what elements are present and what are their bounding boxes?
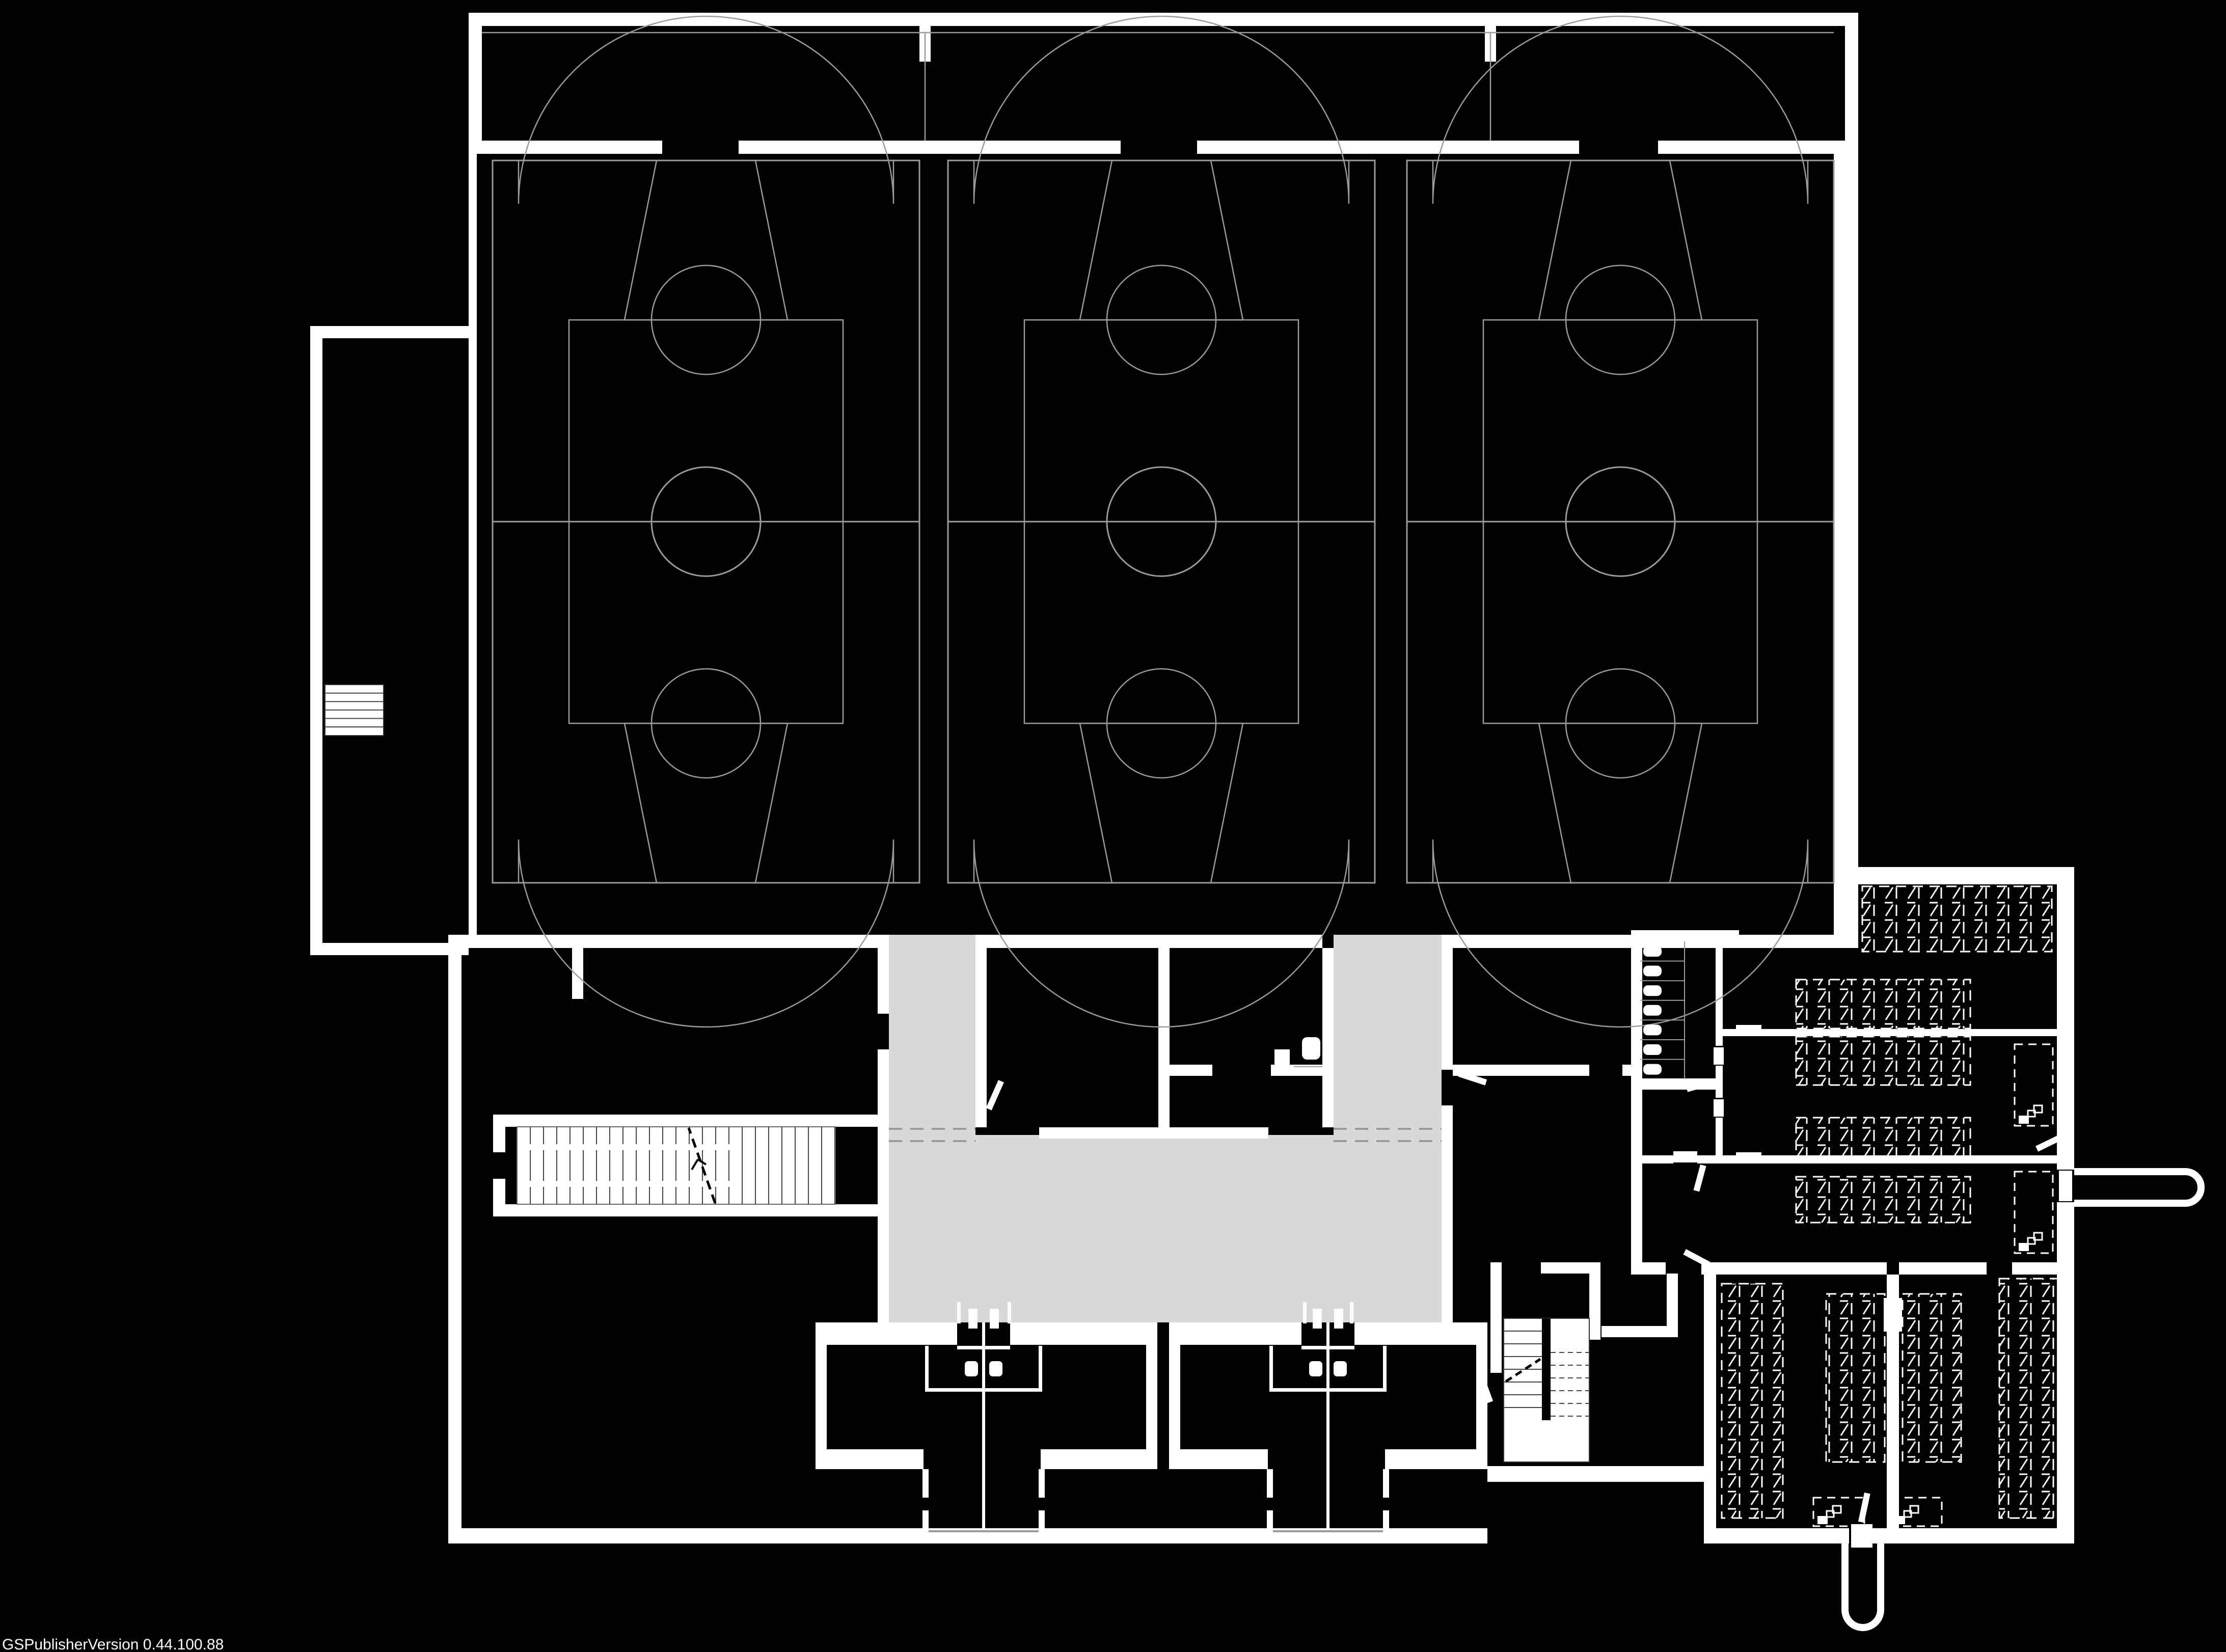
door-panel <box>1736 1152 1761 1163</box>
wall-segment <box>1322 948 1334 1127</box>
central-wc <box>1274 1037 1322 1067</box>
bike-storage-hatch-4 <box>1796 1118 1970 1161</box>
wall-segment <box>1716 1118 1723 1155</box>
wall-segment <box>1039 1510 1045 1528</box>
wall-segment <box>1197 141 1579 154</box>
toilet-fixture <box>1302 1037 1320 1060</box>
wall-segment <box>310 326 469 338</box>
bench-seat <box>989 1361 1002 1376</box>
toilet-fixture <box>1643 985 1662 996</box>
wall-segment <box>448 948 462 1543</box>
wall-segment <box>1169 1322 1180 1469</box>
wall-segment <box>1039 1469 1045 1498</box>
wall-segment <box>1541 1262 1592 1274</box>
wall-segment <box>482 141 662 154</box>
alcove-wall <box>1301 1346 1354 1349</box>
wall-segment <box>448 935 889 948</box>
west-stair <box>517 1127 835 1204</box>
stair-newel-gap <box>1542 1318 1551 1420</box>
toilet-fixture <box>1643 1005 1662 1016</box>
door-panel <box>1851 1524 1872 1548</box>
ramp-east <box>2074 1172 2201 1203</box>
bike-storage-hatch-8 <box>1903 1294 1961 1462</box>
alcove-wall <box>1269 1388 1387 1392</box>
wall-segment <box>975 948 987 1127</box>
wall-segment <box>1039 1127 1268 1139</box>
annex-stair <box>325 685 384 736</box>
equipment-box-3 <box>1813 1498 1864 1526</box>
wall-segment <box>1667 1274 1678 1337</box>
wall-segment <box>1631 940 1642 1262</box>
bike-storage-hatch-6 <box>1722 1284 1783 1518</box>
alcove-wall <box>1383 1346 1387 1392</box>
top-gallery-detail <box>482 33 1834 141</box>
bike-storage-hatch-2 <box>1796 980 1970 1028</box>
wall-segment <box>493 1179 505 1204</box>
wall-segment <box>1169 1449 1268 1469</box>
alcove-wall <box>925 1346 929 1392</box>
toilet-fixture <box>1643 1044 1662 1055</box>
door-panel <box>1714 1047 1724 1065</box>
wall-segment <box>1631 1262 1666 1275</box>
wall-segment <box>739 141 1121 154</box>
equipment-box-outline <box>2015 1044 2053 1126</box>
wall-segment <box>310 326 322 955</box>
wall-segment <box>1169 1322 1301 1345</box>
bike-storage-hatch-9 <box>1999 1279 2058 1518</box>
wall-segment <box>469 154 477 935</box>
wall-segment <box>2057 1202 2074 1543</box>
ramp-south <box>1845 1543 1881 1628</box>
wall-segment <box>1383 1469 1389 1498</box>
toilet-fixture <box>1643 1064 1662 1075</box>
door-panel <box>2059 1171 2072 1201</box>
wall-segment <box>1158 948 1170 1127</box>
locker-fixture <box>1334 1309 1343 1329</box>
toilet-fixture <box>1643 946 1662 957</box>
wall-segment <box>1845 26 1858 141</box>
partition-line <box>1326 1322 1329 1543</box>
wall-segment <box>310 943 469 955</box>
wall-segment <box>1631 1155 1673 1163</box>
corridor-lower-hall <box>889 1135 1442 1322</box>
locker-fixture <box>968 1309 978 1329</box>
wall-segment <box>878 948 889 1014</box>
corridor-west-arm <box>889 935 975 1135</box>
changing-room-pair-2 <box>1169 1309 1487 1543</box>
bike-storage-hatch-1 <box>1862 886 2052 952</box>
wall-segment <box>1834 154 1858 935</box>
wall-segment <box>1723 1029 1737 1036</box>
wall-segment <box>878 1049 889 1135</box>
alcove-wall <box>957 1346 1010 1349</box>
wall-segment <box>469 26 482 154</box>
sports-hall-courts <box>493 16 1834 1027</box>
wall-segment <box>469 13 1858 26</box>
wall-segment <box>816 1322 957 1345</box>
wall-segment <box>1267 1469 1273 1498</box>
wall-segment <box>1146 1322 1157 1469</box>
corridor-stub-wall <box>1303 1302 1307 1323</box>
dog-leg-stair <box>1504 1318 1589 1462</box>
wall-segment <box>1354 1322 1487 1345</box>
wall-segment <box>1716 940 1723 1046</box>
door-sill <box>1273 1530 1383 1532</box>
wall-segment <box>1887 1275 1899 1298</box>
wall-segment <box>1589 1262 1600 1340</box>
door-panel <box>1714 1099 1724 1117</box>
corridor-stub-wall <box>957 1302 961 1323</box>
bench-seat <box>1309 1361 1322 1376</box>
wall-segment <box>493 1204 878 1216</box>
toilet-fixture <box>1643 966 1662 977</box>
wall-segment <box>1887 1332 1899 1543</box>
wall-segment <box>1761 1029 2057 1036</box>
wall-segment <box>1704 1528 1849 1543</box>
wall-segment <box>1490 1262 1502 1373</box>
wall-segment <box>1453 1065 1589 1076</box>
corridor-east-arm <box>1334 935 1442 1135</box>
wall-segment <box>816 1322 827 1469</box>
wall-segment <box>1487 1466 1716 1482</box>
bike-storage-hatch-3 <box>1796 1037 1970 1085</box>
corridor-stub-wall <box>1008 1302 1011 1323</box>
wall-segment <box>1385 1449 1487 1469</box>
wall-segment <box>1631 930 1739 941</box>
basketball-court-2 <box>948 16 1375 1027</box>
door-leaf-7 <box>1694 1164 1706 1191</box>
wall-segment <box>922 1469 929 1498</box>
wall-segment <box>1704 1275 1716 1543</box>
wall-segment <box>1442 948 1453 1070</box>
door-sill <box>929 1530 1039 1532</box>
wall-segment <box>922 1510 929 1528</box>
alcove-wall <box>1269 1346 1273 1392</box>
door-leaf-5 <box>1683 1249 1710 1267</box>
wall-segment <box>1442 1105 1453 1135</box>
wall-segment <box>1899 1262 1987 1275</box>
floor-plan: GSPublisherVersion 0.44.100.88 <box>0 0 2226 1652</box>
wall-segment <box>1010 1322 1157 1345</box>
changing-room-pair-1 <box>816 1309 1157 1543</box>
basketball-court-3 <box>1407 16 1834 1027</box>
wall-segment <box>878 1135 889 1322</box>
locker-fixture <box>1313 1309 1322 1329</box>
bike-storage-hatch-7 <box>1826 1294 1885 1462</box>
corridor-stub-wall <box>1350 1302 1353 1323</box>
wall-segment <box>1383 1510 1389 1528</box>
door-panel <box>1673 1151 1697 1162</box>
alcove-wall <box>925 1388 1042 1392</box>
changing-rooms <box>816 1309 1487 1543</box>
wall-segment <box>1442 1135 1453 1322</box>
wall-segment <box>1267 1510 1273 1528</box>
locker-fixture <box>990 1309 999 1329</box>
equipment-box-2 <box>2015 1172 2053 1253</box>
equipment-box-outline <box>2015 1172 2053 1253</box>
basketball-court-1 <box>493 16 919 1027</box>
door-leaf-8 <box>986 1080 1004 1111</box>
wall-segment <box>1041 1449 1157 1469</box>
toilet-stalls <box>1640 941 1685 1079</box>
wall-segment <box>2057 867 2074 1170</box>
wall-segment <box>493 1115 878 1127</box>
bench-seat <box>1334 1361 1347 1376</box>
wall-segment <box>1697 1155 1737 1163</box>
bench-seat <box>965 1361 978 1376</box>
floor-plan-canvas: GSPublisherVersion 0.44.100.88 <box>0 0 2226 1652</box>
wall-segment <box>493 1127 505 1152</box>
version-label: GSPublisherVersion 0.44.100.88 <box>2 1636 224 1652</box>
wall-segment <box>1658 141 1858 154</box>
wall-segment <box>1858 867 2074 884</box>
door-panel <box>1884 1298 1902 1332</box>
cistern-fixture <box>1274 1049 1290 1066</box>
wall-segment <box>975 935 1322 948</box>
wall-segment <box>1701 1262 1887 1275</box>
partition-line <box>982 1322 985 1543</box>
wall-segment <box>816 1449 924 1469</box>
wall-segment <box>1601 1326 1678 1337</box>
toilet-fixture <box>1643 1024 1662 1035</box>
wall-segment <box>572 948 583 999</box>
wall-segment <box>1170 1065 1212 1076</box>
alcove-wall <box>1039 1346 1042 1392</box>
door-panel <box>1736 1025 1761 1036</box>
wall-segment <box>2012 1262 2074 1275</box>
wall-segment <box>1872 1528 2074 1543</box>
equipment-box-1 <box>2015 1044 2053 1126</box>
bike-storage-hatch-5 <box>1796 1177 1970 1223</box>
